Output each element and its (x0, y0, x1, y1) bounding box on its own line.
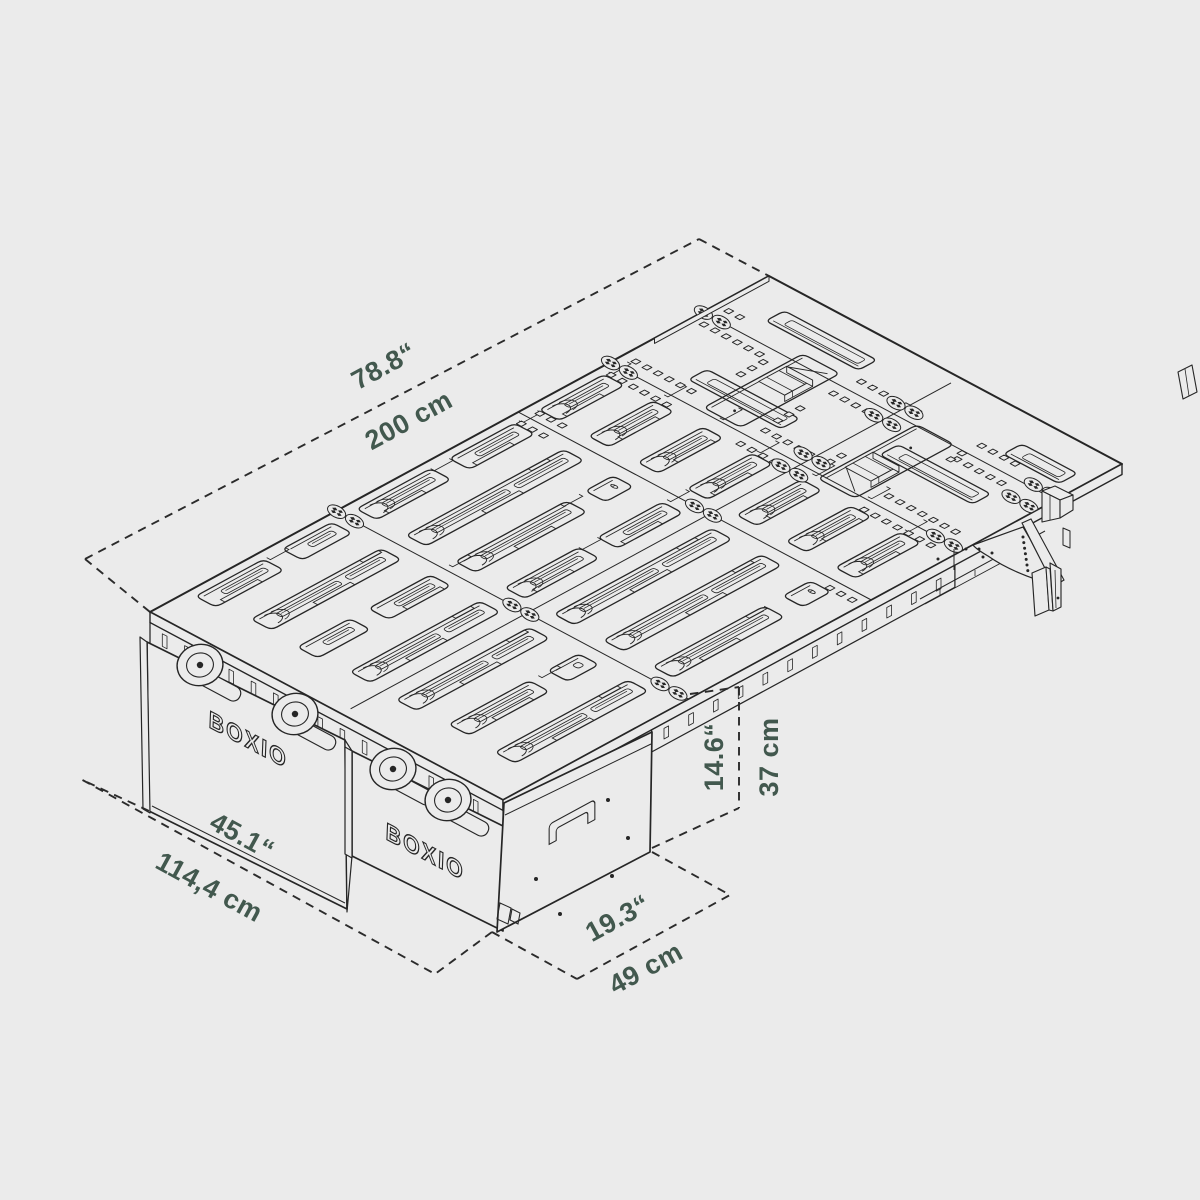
svg-text:37 cm: 37 cm (754, 717, 784, 796)
svg-text:14.6“: 14.6“ (699, 723, 729, 792)
